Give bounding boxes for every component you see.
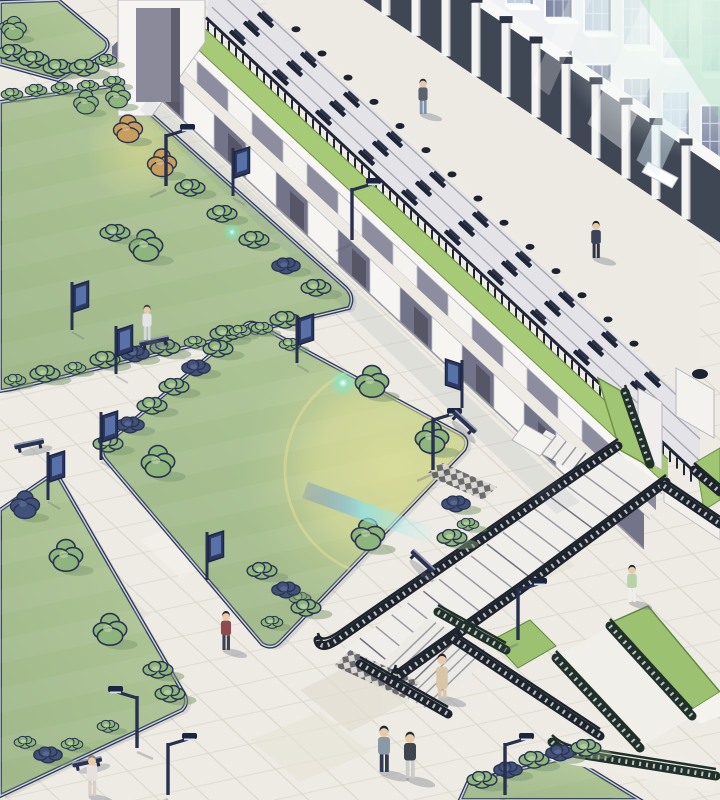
lamp-light-face [184, 739, 195, 741]
banner-flag-panel [120, 329, 130, 350]
bush-highlight [6, 49, 14, 55]
person-torso [436, 667, 448, 689]
tree-highlight [139, 241, 148, 248]
bush-highlight [109, 229, 117, 235]
person-leg [593, 243, 596, 258]
bush-highlight [42, 751, 49, 756]
lamp-light-face [534, 584, 545, 586]
tree-highlight [122, 125, 130, 131]
bush-highlight [21, 740, 27, 744]
bush-highlight [11, 378, 17, 382]
person-torso [378, 737, 390, 755]
bush-highlight [52, 64, 60, 69]
bush-highlight [184, 184, 192, 190]
column-cap [470, 0, 483, 3]
tree-highlight [103, 625, 112, 632]
lamp-head [519, 733, 534, 739]
window-edge-shade [531, 0, 534, 4]
parapet-knob [344, 75, 353, 81]
person-leg [633, 588, 636, 602]
person-head [420, 81, 427, 88]
bush-highlight [554, 749, 561, 754]
bush-highlight [78, 64, 86, 69]
parapet-knob [474, 196, 483, 202]
lamp-pole [503, 743, 506, 795]
lamp-light-face [182, 130, 193, 132]
lamp-light-face [521, 739, 532, 741]
railing-baluster [669, 451, 671, 462]
person-torso [221, 621, 231, 636]
lamp-light-face [110, 692, 121, 694]
person-leg [443, 690, 447, 698]
banner-flag-panel [105, 415, 115, 436]
banner-flag-panel [237, 151, 247, 172]
parapet-knob [396, 123, 405, 129]
bush-highlight [152, 666, 160, 672]
bush-highlight [104, 724, 110, 728]
person-leg [222, 634, 225, 650]
person-torso [627, 574, 637, 588]
column-shade [389, 0, 391, 15]
bush-highlight [256, 567, 264, 573]
parapet-knob [448, 171, 457, 177]
parapet-knob [370, 99, 379, 105]
bush-highlight [146, 402, 154, 408]
lamp-light-face [368, 184, 379, 186]
lamp-pole [350, 188, 353, 240]
railing-baluster [683, 464, 685, 475]
teal-spark-2 [223, 223, 241, 241]
tree-highlight [9, 25, 16, 30]
bush-highlight [71, 366, 77, 370]
lamp-pole [431, 418, 434, 470]
pavilion-door-shade [171, 8, 180, 102]
bush-highlight [110, 80, 116, 84]
parapet-knob [318, 50, 327, 56]
bush-highlight [191, 340, 197, 344]
bush-highlight [279, 316, 287, 322]
person-head [144, 307, 151, 314]
scene-svg [0, 0, 720, 800]
person-head [592, 223, 599, 230]
bush-highlight [446, 534, 454, 540]
person-head [628, 567, 635, 574]
parapet-knob [630, 341, 639, 347]
tree-highlight [151, 457, 160, 464]
bush-highlight [280, 586, 287, 591]
lamp-head [180, 124, 195, 130]
person-head [406, 734, 415, 743]
parapet-knob [422, 147, 431, 153]
tree-highlight [19, 501, 27, 507]
bush-highlight [464, 522, 470, 526]
column-cap [530, 36, 543, 43]
person-torso [591, 230, 601, 244]
bush-highlight [268, 620, 274, 624]
person-leg [144, 326, 147, 340]
tree-highlight [365, 377, 374, 384]
bush-highlight [310, 284, 318, 290]
banner-flag-panel [211, 535, 221, 556]
bush-highlight [216, 210, 224, 216]
bush-highlight [99, 356, 107, 362]
bush-highlight [476, 776, 484, 782]
bush-highlight [300, 604, 308, 610]
person-torso [418, 87, 427, 100]
column-shade [479, 3, 481, 77]
bush-highlight [68, 742, 74, 746]
person-leg [424, 101, 427, 114]
lamp-head [532, 578, 547, 584]
person-leg [227, 635, 230, 650]
person-head [380, 728, 389, 737]
tree-highlight [81, 99, 88, 104]
parapet-knob [526, 244, 535, 250]
bush-highlight [286, 342, 292, 346]
lamp-pole [166, 743, 169, 795]
parapet-knob [604, 316, 613, 322]
lamp-pole [135, 696, 138, 748]
banner-flag-panel [52, 455, 62, 476]
person-leg [88, 780, 91, 797]
person-leg [380, 753, 384, 772]
bush-highlight [212, 345, 220, 351]
bush-highlight [528, 756, 536, 762]
bush-highlight [236, 329, 242, 333]
banner-flag-panel [301, 318, 311, 339]
person-head [438, 656, 447, 665]
person-leg [629, 587, 632, 602]
column-shade [419, 0, 421, 36]
bush-highlight [102, 58, 108, 62]
parapet-knob [500, 220, 509, 226]
person-leg [148, 327, 151, 340]
bush-highlight [190, 364, 197, 369]
banner-flag-panel [448, 363, 458, 384]
person-torso [404, 743, 416, 761]
bush-highlight [58, 86, 64, 90]
person-leg [93, 781, 96, 796]
parapet-knob [578, 292, 587, 298]
bush-highlight [258, 326, 264, 330]
lamp-head [366, 178, 381, 184]
window-glass [506, 0, 533, 4]
person-leg [420, 100, 423, 114]
campus-plaza-illustration: const data = JSON.parse(document.getElem… [0, 0, 720, 800]
person-leg [438, 688, 442, 698]
bush-highlight [39, 370, 47, 376]
bush-highlight [168, 383, 176, 389]
bush-highlight [124, 421, 131, 426]
tree-highlight [59, 551, 68, 558]
lamp-pole [516, 588, 519, 640]
bush-highlight [580, 744, 588, 750]
tree-highlight [156, 159, 164, 165]
banner-flag-panel [76, 285, 86, 306]
person-leg [406, 759, 410, 778]
bush-highlight [164, 690, 172, 696]
bush-highlight [248, 236, 256, 242]
tree-highlight [361, 530, 370, 537]
person-torso [87, 765, 98, 780]
person-leg [385, 755, 389, 773]
lamp-pole [164, 134, 167, 186]
person-head [88, 757, 96, 765]
railing-baluster [676, 458, 678, 469]
bush-highlight [219, 330, 227, 336]
end-block-knob [692, 369, 708, 379]
bush-highlight [8, 92, 14, 96]
person-torso [142, 313, 151, 326]
person-head [222, 613, 230, 621]
teal-spark-1 [329, 369, 357, 397]
parapet-knob [292, 26, 301, 32]
lamp-head [182, 733, 197, 739]
bush-highlight [28, 56, 36, 62]
person-leg [411, 761, 415, 779]
person-leg [597, 244, 600, 258]
tree-highlight [113, 93, 120, 98]
column-cap [500, 16, 513, 23]
bush-highlight [32, 88, 38, 92]
lamp-head [108, 686, 123, 692]
column-shade [509, 23, 511, 97]
bush-highlight [84, 84, 90, 88]
bush-highlight [450, 500, 457, 505]
column-shade [449, 0, 451, 56]
parapet-knob [552, 268, 561, 274]
bush-highlight [280, 262, 287, 267]
